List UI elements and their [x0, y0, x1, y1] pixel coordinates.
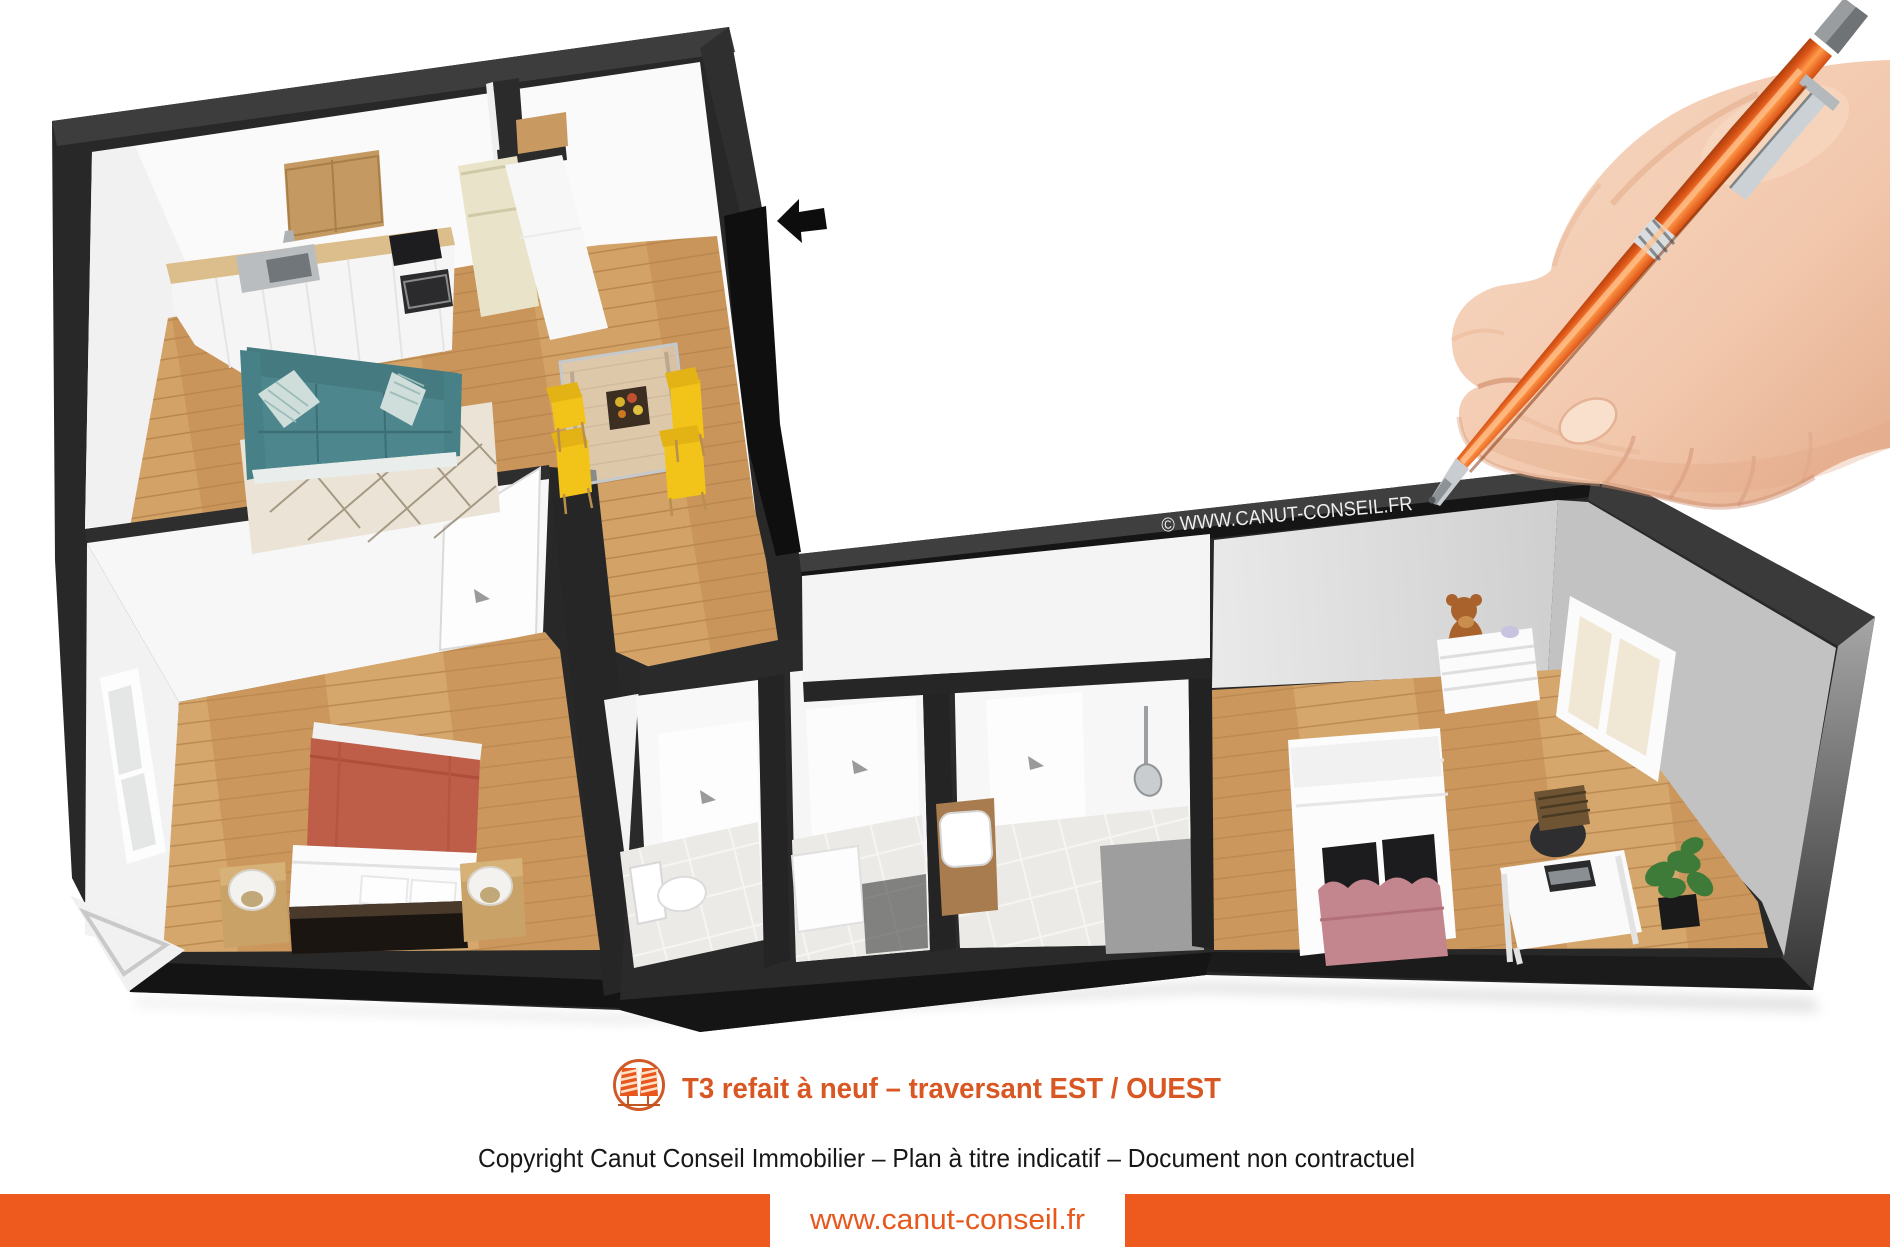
svg-text:T3 refait à neuf – traversant: T3 refait à neuf – traversant EST / OUES…	[682, 1073, 1221, 1105]
svg-text:Copyright Canut Conseil Immobi: Copyright Canut Conseil Immobilier – Pla…	[478, 1143, 1415, 1173]
svg-text:www.canut-conseil.fr: www.canut-conseil.fr	[809, 1204, 1085, 1236]
